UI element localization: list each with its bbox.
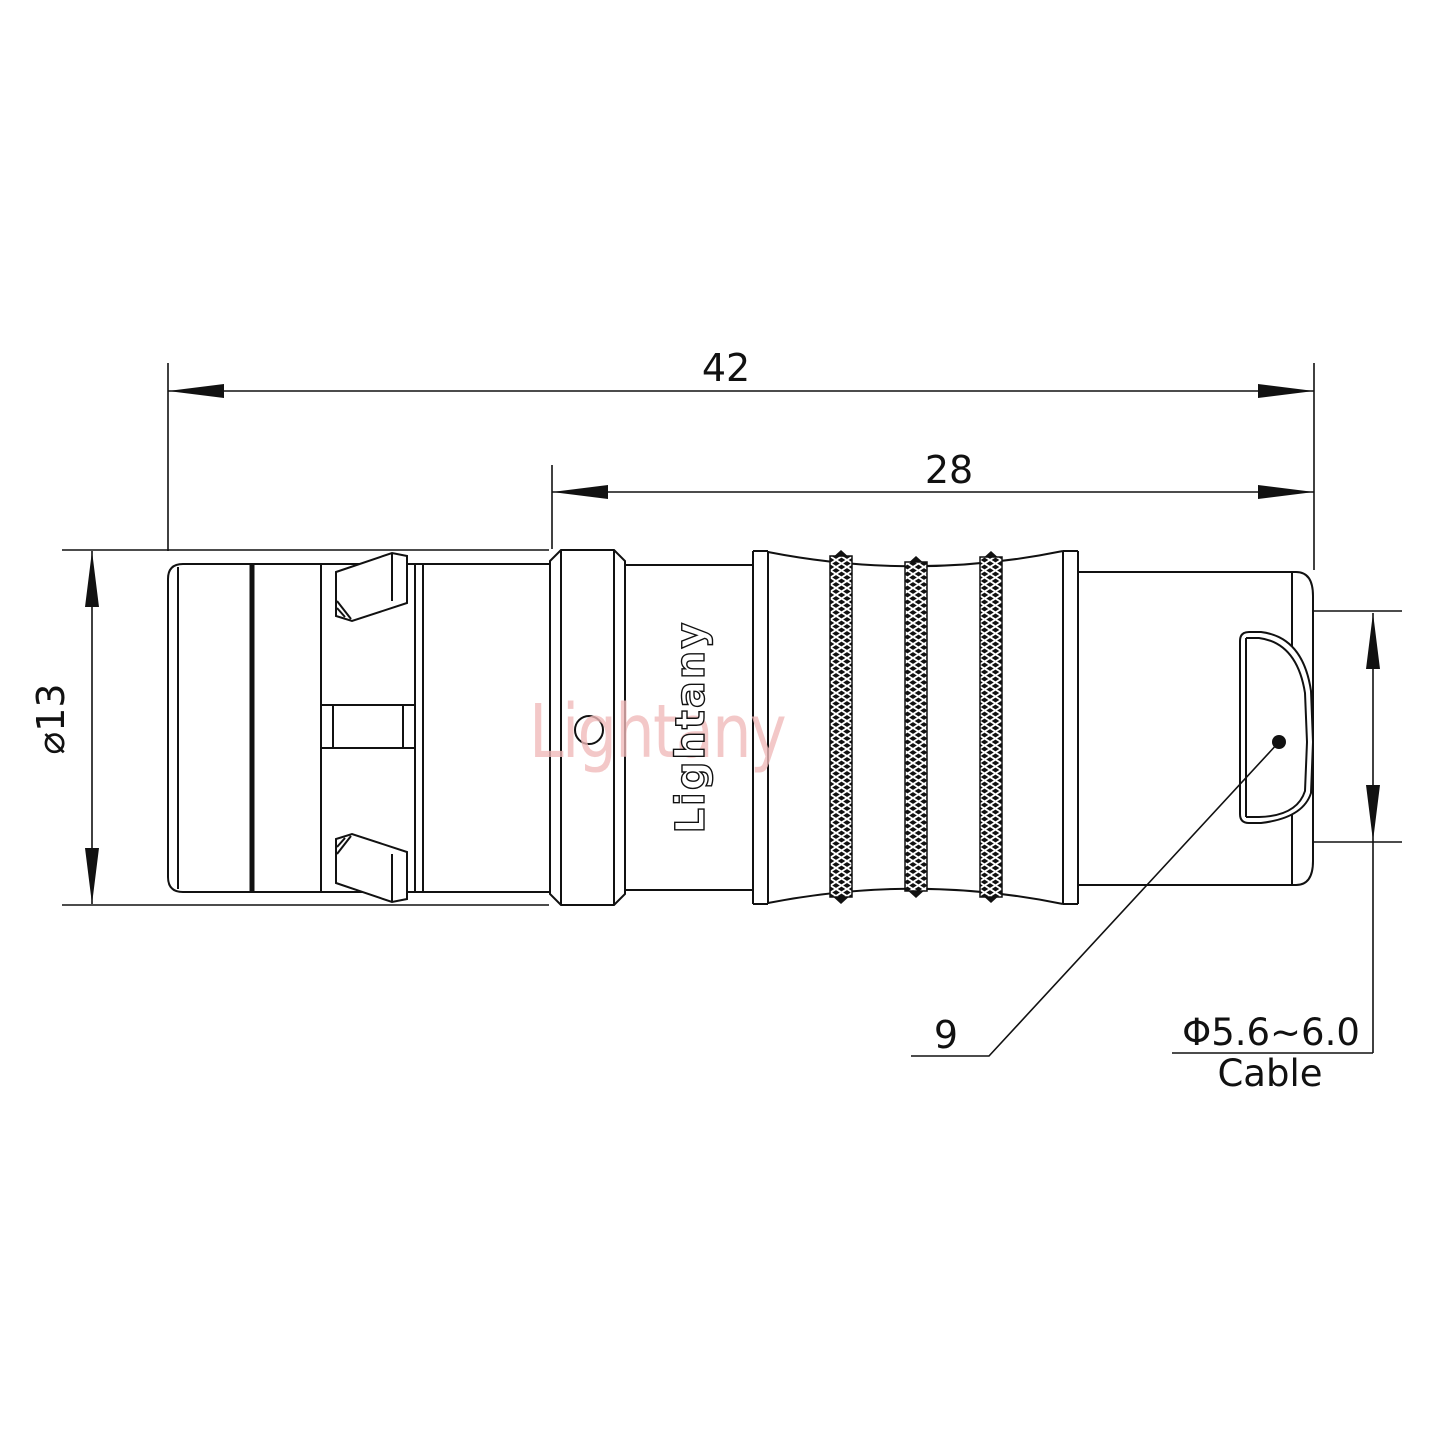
watermark: Lightany	[529, 690, 785, 776]
knurl-band-1	[830, 550, 852, 904]
dimension-grip-length: 28	[552, 448, 1314, 549]
grip-length-label: 28	[925, 448, 973, 492]
cable-diameter-label: Φ5.6~6.0	[1182, 1011, 1360, 1054]
dimension-body-diameter: ⌀13	[29, 550, 549, 905]
connector-drawing: Lightany Lightany 42 28 ⌀13 Φ5.6~6.0	[0, 0, 1440, 1440]
ref-number-label: 9	[934, 1013, 958, 1057]
body-diameter-label: ⌀13	[29, 683, 73, 754]
bushing-window	[1240, 632, 1313, 823]
front-shell	[168, 553, 550, 902]
knurl-band-2	[905, 556, 927, 898]
dimension-overall-length: 42	[168, 346, 1314, 570]
cable-word-label: Cable	[1217, 1052, 1322, 1095]
technical-drawing-page: Lightany Lightany 42 28 ⌀13 Φ5.6~6.0	[0, 0, 1440, 1440]
knurl-band-3	[980, 551, 1002, 903]
key-window	[321, 705, 415, 748]
overall-length-label: 42	[702, 346, 750, 390]
leader-ref-9: 9	[911, 742, 1279, 1057]
knurl-grip	[753, 550, 1078, 904]
cable-entry	[1078, 572, 1313, 885]
body-engraving: Lightany	[668, 621, 714, 834]
